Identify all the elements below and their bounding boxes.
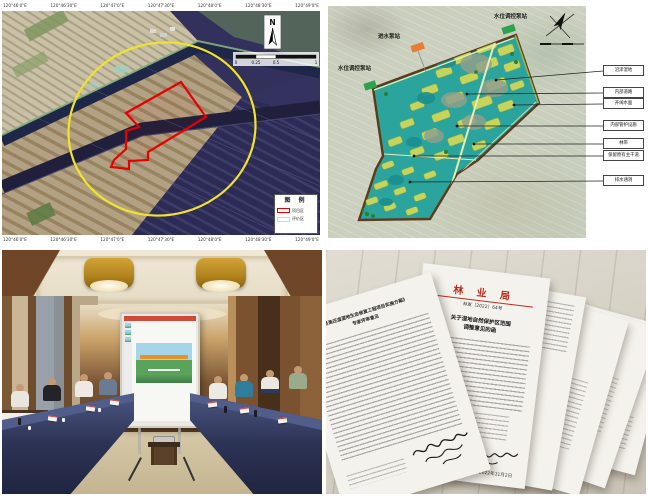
callout-marsh-wetland: 沼泽湿地 — [603, 65, 644, 76]
callout-internal-road: 内部道路 — [603, 87, 644, 98]
level-control-pump-label: 水位调控泵站 — [338, 64, 371, 72]
plan-compass — [540, 10, 584, 45]
crown-molding-left — [2, 250, 80, 296]
legend-row-evaluation-area: 评价区 — [277, 216, 315, 222]
screen-leg — [138, 428, 141, 454]
coord-label: 120°47'30"E — [148, 236, 174, 244]
legend-label: 项目区 — [292, 208, 304, 214]
name-card — [110, 399, 120, 405]
legend-title: 图 例 — [277, 197, 315, 205]
coord-label: 120°47'30"E — [148, 2, 174, 10]
slide-subtitle-bar — [148, 369, 180, 371]
attendee — [208, 376, 228, 402]
teacup — [62, 418, 65, 422]
coord-label: 120°47'0"E — [100, 2, 124, 10]
ppt-slide — [132, 321, 196, 421]
map-legend: 图 例 项目区 评价区 — [274, 194, 318, 234]
slide-title-bar — [140, 355, 188, 359]
slide-landscape-image — [136, 343, 192, 383]
north-arrow: N — [264, 15, 281, 49]
coord-label: 120°48'0"E — [198, 236, 222, 244]
chandelier — [192, 252, 250, 296]
callout-management-facility: 内部管护设施 — [603, 120, 644, 131]
map-coordinates-top: 120°46'0"E 120°46'30"E 120°47'0"E 120°47… — [2, 2, 320, 10]
legend-row-project-area: 项目区 — [277, 208, 315, 214]
coord-label: 120°49'0"E — [295, 2, 319, 10]
intake-pump-marker — [410, 42, 425, 53]
projector-table — [148, 436, 180, 466]
scale-tick: 0.25 — [252, 60, 261, 65]
coord-label: 120°46'30"E — [50, 2, 76, 10]
red-boundary-swatch — [277, 208, 290, 213]
scale-bar: 0 0.25 0.5 1 — [233, 52, 319, 66]
scale-tick: 0.5 — [273, 60, 280, 65]
callout-forest-belt: 林带 — [603, 138, 644, 149]
coord-label: 120°47'0"E — [100, 236, 124, 244]
shallow-water — [88, 82, 100, 88]
chandelier — [80, 252, 138, 296]
attendee — [74, 374, 94, 400]
north-label: N — [269, 18, 275, 27]
thermos-bottle — [224, 406, 227, 413]
coord-label: 120°49'0"E — [295, 236, 319, 244]
coord-label: 120°46'0"E — [3, 236, 27, 244]
intake-pump-label: 进水泵站 — [378, 32, 400, 40]
scale-tick: 0 — [235, 60, 238, 65]
teacup — [28, 426, 31, 430]
level-control-pump-label: 水位调控泵站 — [494, 12, 527, 20]
crown-molding-right — [244, 250, 322, 296]
coord-label: 120°46'0"E — [3, 2, 27, 10]
yellow-boundary-swatch — [277, 217, 290, 222]
callout-retained-main-road: 保留原有主干道 — [603, 150, 644, 161]
meeting-room-photo — [2, 250, 322, 494]
name-card — [86, 405, 96, 411]
wetland-plan-panel: 进水泵站 水位调控泵站 水位调控泵站 沼泽湿地 内部道路 开阔水面 内部管护设施… — [326, 2, 646, 246]
callout-open-water: 开阔水面 — [603, 98, 644, 109]
attendee — [42, 378, 62, 404]
teacup — [98, 408, 101, 412]
coord-label: 120°48'0"E — [198, 2, 222, 10]
legend-label: 评价区 — [292, 216, 304, 222]
attendee — [98, 372, 118, 398]
scale-tick: 1 — [315, 60, 318, 65]
shallow-water — [114, 65, 130, 73]
callout-drain-culvert: 排水涵洞 — [603, 175, 644, 186]
coord-label: 120°46'30"E — [50, 236, 76, 244]
attendee — [288, 366, 308, 392]
attendee — [234, 374, 254, 400]
attendee — [10, 384, 30, 410]
coord-label: 120°48'30"E — [245, 236, 271, 244]
map-coordinates-bottom: 120°46'0"E 120°46'30"E 120°47'0"E 120°47… — [2, 236, 320, 244]
thermos-bottle — [254, 410, 257, 417]
documents-photo: 自然资源和规划局 林 业 局 林发〔2022〕64号 关于湿地自然保护区范围 调… — [326, 250, 646, 494]
pump-station-marker — [501, 24, 516, 35]
thermos-bottle — [18, 418, 21, 425]
coord-label: 120°48'30"E — [245, 2, 271, 10]
attendee — [260, 370, 280, 396]
satellite-map-panel: 120°46'0"E 120°46'30"E 120°47'0"E 120°47… — [2, 2, 320, 246]
plan-drawing — [326, 2, 646, 245]
satellite-map-image: N 0 0.25 0.5 1 — [2, 11, 320, 235]
name-card — [48, 415, 58, 421]
figure-collage: 120°46'0"E 120°46'30"E 120°47'0"E 120°47… — [0, 0, 648, 496]
